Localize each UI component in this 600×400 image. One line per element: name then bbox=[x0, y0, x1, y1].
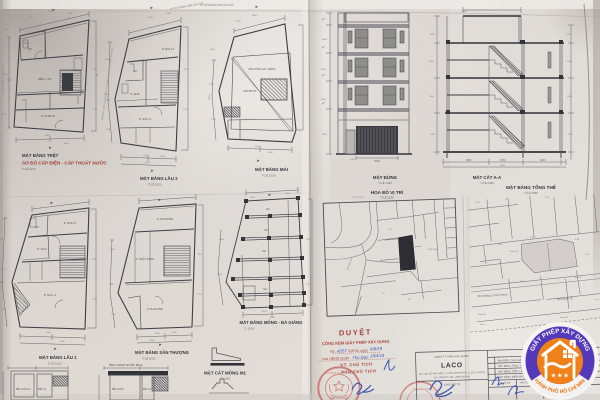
svg-text:MẶT BẰNG TRỆT: MẶT BẰNG TRỆT bbox=[22, 153, 59, 158]
svg-text:1750: 1750 bbox=[197, 294, 203, 296]
svg-text:TL 1/50: TL 1/50 bbox=[221, 377, 230, 381]
svg-text:2350: 2350 bbox=[111, 314, 117, 316]
svg-text:1750: 1750 bbox=[92, 299, 98, 301]
svg-text:3400: 3400 bbox=[321, 69, 327, 71]
svg-text:MÁI KÍNH LẤY SÁNG: MÁI KÍNH LẤY SÁNG bbox=[248, 66, 275, 71]
svg-text:13 B CBCC: 13 B CBCC bbox=[428, 249, 439, 251]
svg-text:2050: 2050 bbox=[143, 155, 149, 157]
svg-text:S.THƯỢNG: S.THƯỢNG bbox=[157, 217, 174, 221]
svg-text:4200: 4200 bbox=[568, 134, 574, 136]
svg-text:2350: 2350 bbox=[211, 119, 217, 121]
svg-text:1950: 1950 bbox=[110, 249, 116, 251]
svg-text:MẶT BẰNG LẦU 2: MẶT BẰNG LẦU 2 bbox=[140, 176, 178, 181]
svg-text:2000: 2000 bbox=[155, 333, 161, 335]
svg-text:5000: 5000 bbox=[148, 17, 154, 19]
svg-text:★★★: ★★★ bbox=[551, 372, 570, 380]
svg-text:MẶT BẰNG MÁI: MẶT BẰNG MÁI bbox=[255, 167, 288, 172]
svg-text:4800: 4800 bbox=[150, 340, 156, 342]
svg-text:WC: WC bbox=[35, 225, 39, 229]
svg-text:4800: 4800 bbox=[145, 162, 151, 164]
svg-text:WC: WC bbox=[133, 69, 137, 73]
svg-text:3600: 3600 bbox=[466, 159, 472, 162]
svg-text:MẶT CẮT A-A: MẶT CẮT A-A bbox=[473, 175, 502, 180]
svg-text:HỌA ĐỒ VỊ TRÍ: HỌA ĐỒ VỊ TRÍ bbox=[371, 188, 404, 195]
svg-text:4800: 4800 bbox=[64, 143, 70, 145]
svg-text:1200: 1200 bbox=[28, 17, 34, 19]
svg-text:1350: 1350 bbox=[236, 21, 242, 23]
svg-text:thửa 66: thửa 66 bbox=[478, 313, 486, 316]
svg-text:5140: 5140 bbox=[262, 311, 268, 313]
svg-text:P. NGỦ 4: P. NGỦ 4 bbox=[162, 46, 175, 51]
svg-text:1750: 1750 bbox=[92, 109, 98, 111]
svg-text:DUYỆT: DUYỆT bbox=[339, 327, 372, 337]
svg-text:5900: 5900 bbox=[219, 239, 225, 241]
svg-text:P. KHÁCH: P. KHÁCH bbox=[41, 114, 55, 118]
svg-text:3600: 3600 bbox=[430, 34, 436, 36]
svg-text:P. NGỦ 2: P. NGỦ 2 bbox=[64, 220, 77, 225]
svg-text:4800: 4800 bbox=[252, 15, 258, 17]
svg-text:4800: 4800 bbox=[45, 135, 51, 137]
svg-text:3400: 3400 bbox=[429, 96, 435, 98]
svg-text:Số: Số bbox=[330, 350, 335, 354]
svg-text:S.THƯỢNG: S.THƯỢNG bbox=[147, 307, 164, 311]
svg-text:1060: 1060 bbox=[285, 193, 291, 195]
svg-text:P. SHC: P. SHC bbox=[37, 247, 47, 251]
svg-text:6/8/19: 6/8/19 bbox=[370, 346, 383, 351]
svg-text:3600: 3600 bbox=[322, 39, 328, 41]
svg-text:MẶT CẮT MÓNG M1: MẶT CẮT MÓNG M1 bbox=[204, 371, 247, 376]
svg-text:29/4/19: 29/4/19 bbox=[369, 353, 385, 359]
svg-text:9600: 9600 bbox=[500, 165, 506, 167]
svg-text:1040: 1040 bbox=[166, 13, 172, 15]
svg-text:thửa 20: thửa 20 bbox=[510, 250, 518, 253]
svg-text:1700: 1700 bbox=[566, 34, 572, 36]
svg-text:4000: 4000 bbox=[322, 134, 328, 136]
svg-text:4257: 4257 bbox=[337, 348, 347, 353]
svg-text:thổ cư: thổ cư bbox=[520, 280, 527, 283]
svg-text:ĐƯỜNG HẺM LỘ GIỚI 4M: ĐƯỜNG HẺM LỘ GIỚI 4M bbox=[2, 66, 5, 95]
svg-text:BẾP + PK: BẾP + PK bbox=[38, 76, 51, 81]
svg-text:5000: 5000 bbox=[374, 160, 380, 163]
svg-text:P. SHC: P. SHC bbox=[130, 92, 140, 96]
svg-text:ỐNG THOÁT NƯỚC MƯA: ỐNG THOÁT NƯỚC MƯA bbox=[109, 362, 143, 367]
svg-text:MẶT BẰNG TỔNG THỂ: MẶT BẰNG TỔNG THỂ bbox=[506, 183, 556, 190]
svg-text:2350: 2350 bbox=[1, 309, 7, 311]
svg-text:3400: 3400 bbox=[321, 99, 327, 101]
svg-text:TL 1/100: TL 1/100 bbox=[244, 327, 255, 331]
svg-text:4850: 4850 bbox=[268, 152, 274, 154]
svg-text:2730: 2730 bbox=[217, 274, 223, 276]
svg-text:3750: 3750 bbox=[500, 159, 506, 162]
svg-text:Thủ Đức: Thủ Đức bbox=[352, 355, 369, 361]
svg-text:P. GIẶT PHƠI: P. GIẶT PHƠI bbox=[136, 257, 155, 261]
svg-text:4800: 4800 bbox=[270, 317, 276, 319]
svg-text:1000: 1000 bbox=[350, 159, 356, 161]
svg-text:4800: 4800 bbox=[48, 11, 54, 13]
svg-text:t.cư: t.cư bbox=[595, 298, 599, 301]
svg-text:MÁI BTCT: MÁI BTCT bbox=[243, 89, 256, 93]
svg-text:1900: 1900 bbox=[210, 49, 216, 51]
svg-text:2800: 2800 bbox=[462, 11, 468, 13]
svg-text:3400: 3400 bbox=[567, 96, 573, 98]
svg-text:MẶT ĐỨNG: MẶT ĐỨNG bbox=[373, 175, 398, 180]
svg-text:5000: 5000 bbox=[208, 94, 211, 100]
svg-text:thổ cư: thổ cư bbox=[575, 276, 582, 279]
svg-text:TỈ LỆ 1/500: TỈ LỆ 1/500 bbox=[352, 196, 364, 199]
svg-text:MẶT BẰNG SÂN THƯỢNG: MẶT BẰNG SÂN THƯỢNG bbox=[135, 350, 190, 355]
svg-text:1750: 1750 bbox=[183, 109, 189, 111]
svg-text:3950: 3950 bbox=[0, 269, 6, 271]
svg-text:SƠ ĐỒ CẤP ĐIỆN - CẤP THOÁT NƯỚ: SƠ ĐỒ CẤP ĐIỆN - CẤP THOÁT NƯỚC bbox=[22, 159, 107, 166]
svg-text:thửa 64: thửa 64 bbox=[560, 316, 568, 319]
svg-text:3400: 3400 bbox=[567, 61, 573, 63]
svg-text:thổ cư: thổ cư bbox=[480, 323, 487, 326]
svg-text:3950: 3950 bbox=[109, 284, 115, 286]
svg-text:3400: 3400 bbox=[429, 61, 435, 63]
svg-text:2350: 2350 bbox=[106, 129, 112, 131]
svg-text:1360: 1360 bbox=[250, 197, 256, 199]
svg-text:4200: 4200 bbox=[430, 134, 436, 136]
svg-text:P. NGỦ 3: P. NGỦ 3 bbox=[139, 116, 152, 121]
svg-text:WC: WC bbox=[28, 47, 32, 51]
svg-text:P. NGỦ 1: P. NGỦ 1 bbox=[44, 292, 57, 297]
svg-text:MẶT BẰNG LẦU 1: MẶT BẰNG LẦU 1 bbox=[39, 355, 77, 360]
svg-text:4800: 4800 bbox=[60, 341, 66, 343]
svg-text:10.47: 10.47 bbox=[475, 202, 481, 204]
svg-text:4800: 4800 bbox=[255, 146, 261, 148]
svg-text:2350: 2350 bbox=[2, 114, 8, 116]
svg-text:1500: 1500 bbox=[172, 332, 178, 334]
svg-text:MẶT BẰNG MÓNG - ĐÀ GIẰNG: MẶT BẰNG MÓNG - ĐÀ GIẰNG bbox=[239, 320, 303, 325]
svg-text:4800: 4800 bbox=[46, 332, 52, 334]
svg-text:2100: 2100 bbox=[68, 13, 74, 15]
svg-text:3950: 3950 bbox=[209, 84, 215, 86]
svg-text:1750: 1750 bbox=[306, 284, 312, 286]
svg-text:ỦY BAN NHÂN DÂN: ỦY BAN NHÂN DÂN bbox=[325, 370, 353, 375]
svg-text:LACO: LACO bbox=[441, 362, 463, 370]
svg-text:4050: 4050 bbox=[160, 156, 166, 158]
svg-text:thổ cư: thổ cư bbox=[548, 330, 555, 333]
svg-text:3200: 3200 bbox=[540, 159, 546, 162]
